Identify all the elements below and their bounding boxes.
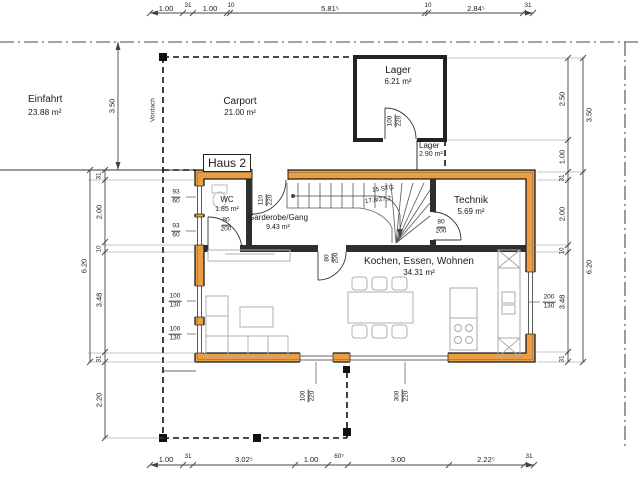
technik-door-label: 80 200 xyxy=(436,219,447,236)
room-wohnen-name: Kochen, Essen, Wohnen xyxy=(364,255,474,268)
dim-left-upper: 3.50 xyxy=(108,99,117,114)
dim-top-2: 1.00 xyxy=(203,4,218,13)
dim-bottom-4: 60⁵ xyxy=(334,453,344,460)
kitchen-window-label: 200 130 xyxy=(543,294,556,311)
dim-left-2: 10 xyxy=(96,245,103,252)
wc-door-label: 80 200 xyxy=(221,217,232,234)
room-wohnen-area: 34.31 m² xyxy=(364,268,474,278)
staircase xyxy=(287,183,430,243)
room-wc: WC 1.85 m² xyxy=(215,195,239,214)
room-einfahrt: Einfahrt 23.88 m² xyxy=(28,94,62,117)
room-technik: Technik 5.69 m² xyxy=(454,194,488,217)
dim-top-4: 5.81⁵ xyxy=(321,4,339,13)
room-carport: Carport 21.00 m² xyxy=(223,95,256,118)
dim-left-lower: 2.20 xyxy=(95,393,104,408)
terrace-outline xyxy=(163,370,347,438)
room-carport-area: 21.00 m² xyxy=(223,108,256,118)
room-wc-area: 1.85 m² xyxy=(215,205,239,214)
room-lager-name: Lager xyxy=(384,64,411,77)
living-window2-label: 100 130 xyxy=(169,326,182,343)
terrace-window-label: 300 220 xyxy=(394,390,411,403)
room-lager-area: 6.21 m² xyxy=(384,77,411,87)
dim-right-0: 2.50 xyxy=(558,92,567,107)
dimension-lines xyxy=(87,10,586,468)
room-einfahrt-area: 23.88 m² xyxy=(28,107,62,118)
dim-bottom-7: 31 xyxy=(525,453,532,460)
dim-right-6: 31 xyxy=(559,355,566,362)
dim-bottom-5: 3.00 xyxy=(391,455,406,464)
room-technik-area: 5.69 m² xyxy=(454,207,488,217)
room-lager2-name: Lager xyxy=(419,141,443,151)
dim-bottom-2: 3.02⁵ xyxy=(235,455,253,464)
dim-right-5: 3.48 xyxy=(558,295,567,310)
dim-left-total: 6.20 xyxy=(80,259,89,274)
dim-top-6: 2.84⁵ xyxy=(467,4,485,13)
dim-right-3: 2.00 xyxy=(558,207,567,222)
terrace-posts xyxy=(159,366,351,442)
room-gang: Garderobe/Gang 9.43 m² xyxy=(248,213,308,232)
dim-top-5: 10 xyxy=(424,2,431,9)
room-wc-name: WC xyxy=(215,195,239,205)
dim-right-outer-1: 6.20 xyxy=(585,260,594,275)
dim-top-7: 31 xyxy=(524,2,531,9)
dim-right-2: 31 xyxy=(559,174,566,181)
lager-door-label: 100 220 xyxy=(387,115,404,128)
dim-left-4: 31 xyxy=(96,355,103,362)
floorplan-graphics xyxy=(0,0,640,480)
room-technik-name: Technik xyxy=(454,194,488,207)
lager-door-gap xyxy=(383,134,417,146)
terrace-door-label: 100 220 xyxy=(300,390,317,403)
room-lager2: Lager 2.90 m² xyxy=(419,141,443,159)
dim-top-3: 10 xyxy=(227,2,234,9)
room-wohnen: Kochen, Essen, Wohnen 34.31 m² xyxy=(364,255,474,278)
dim-top-1: 31 xyxy=(184,2,191,9)
dim-left-3: 3.48 xyxy=(95,293,104,308)
entrance-door-label: 110 220 xyxy=(258,194,275,206)
room-einfahrt-name: Einfahrt xyxy=(28,94,62,107)
dim-left-1: 2.00 xyxy=(95,205,104,220)
floorplan-canvas: Einfahrt 23.88 m² Carport 21.00 m² Lager… xyxy=(0,0,640,480)
wc-window2-label: 93 60 xyxy=(171,223,180,240)
vordach-label: Vordach xyxy=(150,98,157,122)
dim-bottom-1: 31 xyxy=(184,453,191,460)
dim-right-4: 10 xyxy=(559,247,566,254)
dim-left-0: 31 xyxy=(96,172,103,179)
dim-right-1: 1.00 xyxy=(558,150,567,165)
dim-bottom-6: 2.22⁵ xyxy=(477,455,495,464)
drawing-title: Haus 2 xyxy=(203,154,251,172)
wc-window1-label: 93 60 xyxy=(171,189,180,206)
room-lager: Lager 6.21 m² xyxy=(384,64,411,87)
dim-bottom-3: 1.00 xyxy=(304,455,319,464)
room-gang-area: 9.43 m² xyxy=(248,223,308,232)
room-gang-name: Garderobe/Gang xyxy=(248,213,308,223)
room-carport-name: Carport xyxy=(223,95,256,108)
carport-post xyxy=(159,53,167,61)
dim-right-outer-0: 3.50 xyxy=(585,108,594,123)
living-window1-label: 100 130 xyxy=(169,293,182,310)
room-lager2-area: 2.90 m² xyxy=(419,151,443,159)
living-door-label: 80 200 xyxy=(324,253,341,264)
dim-top-0: 1.00 xyxy=(159,4,174,13)
dim-bottom-0: 1.00 xyxy=(159,455,174,464)
